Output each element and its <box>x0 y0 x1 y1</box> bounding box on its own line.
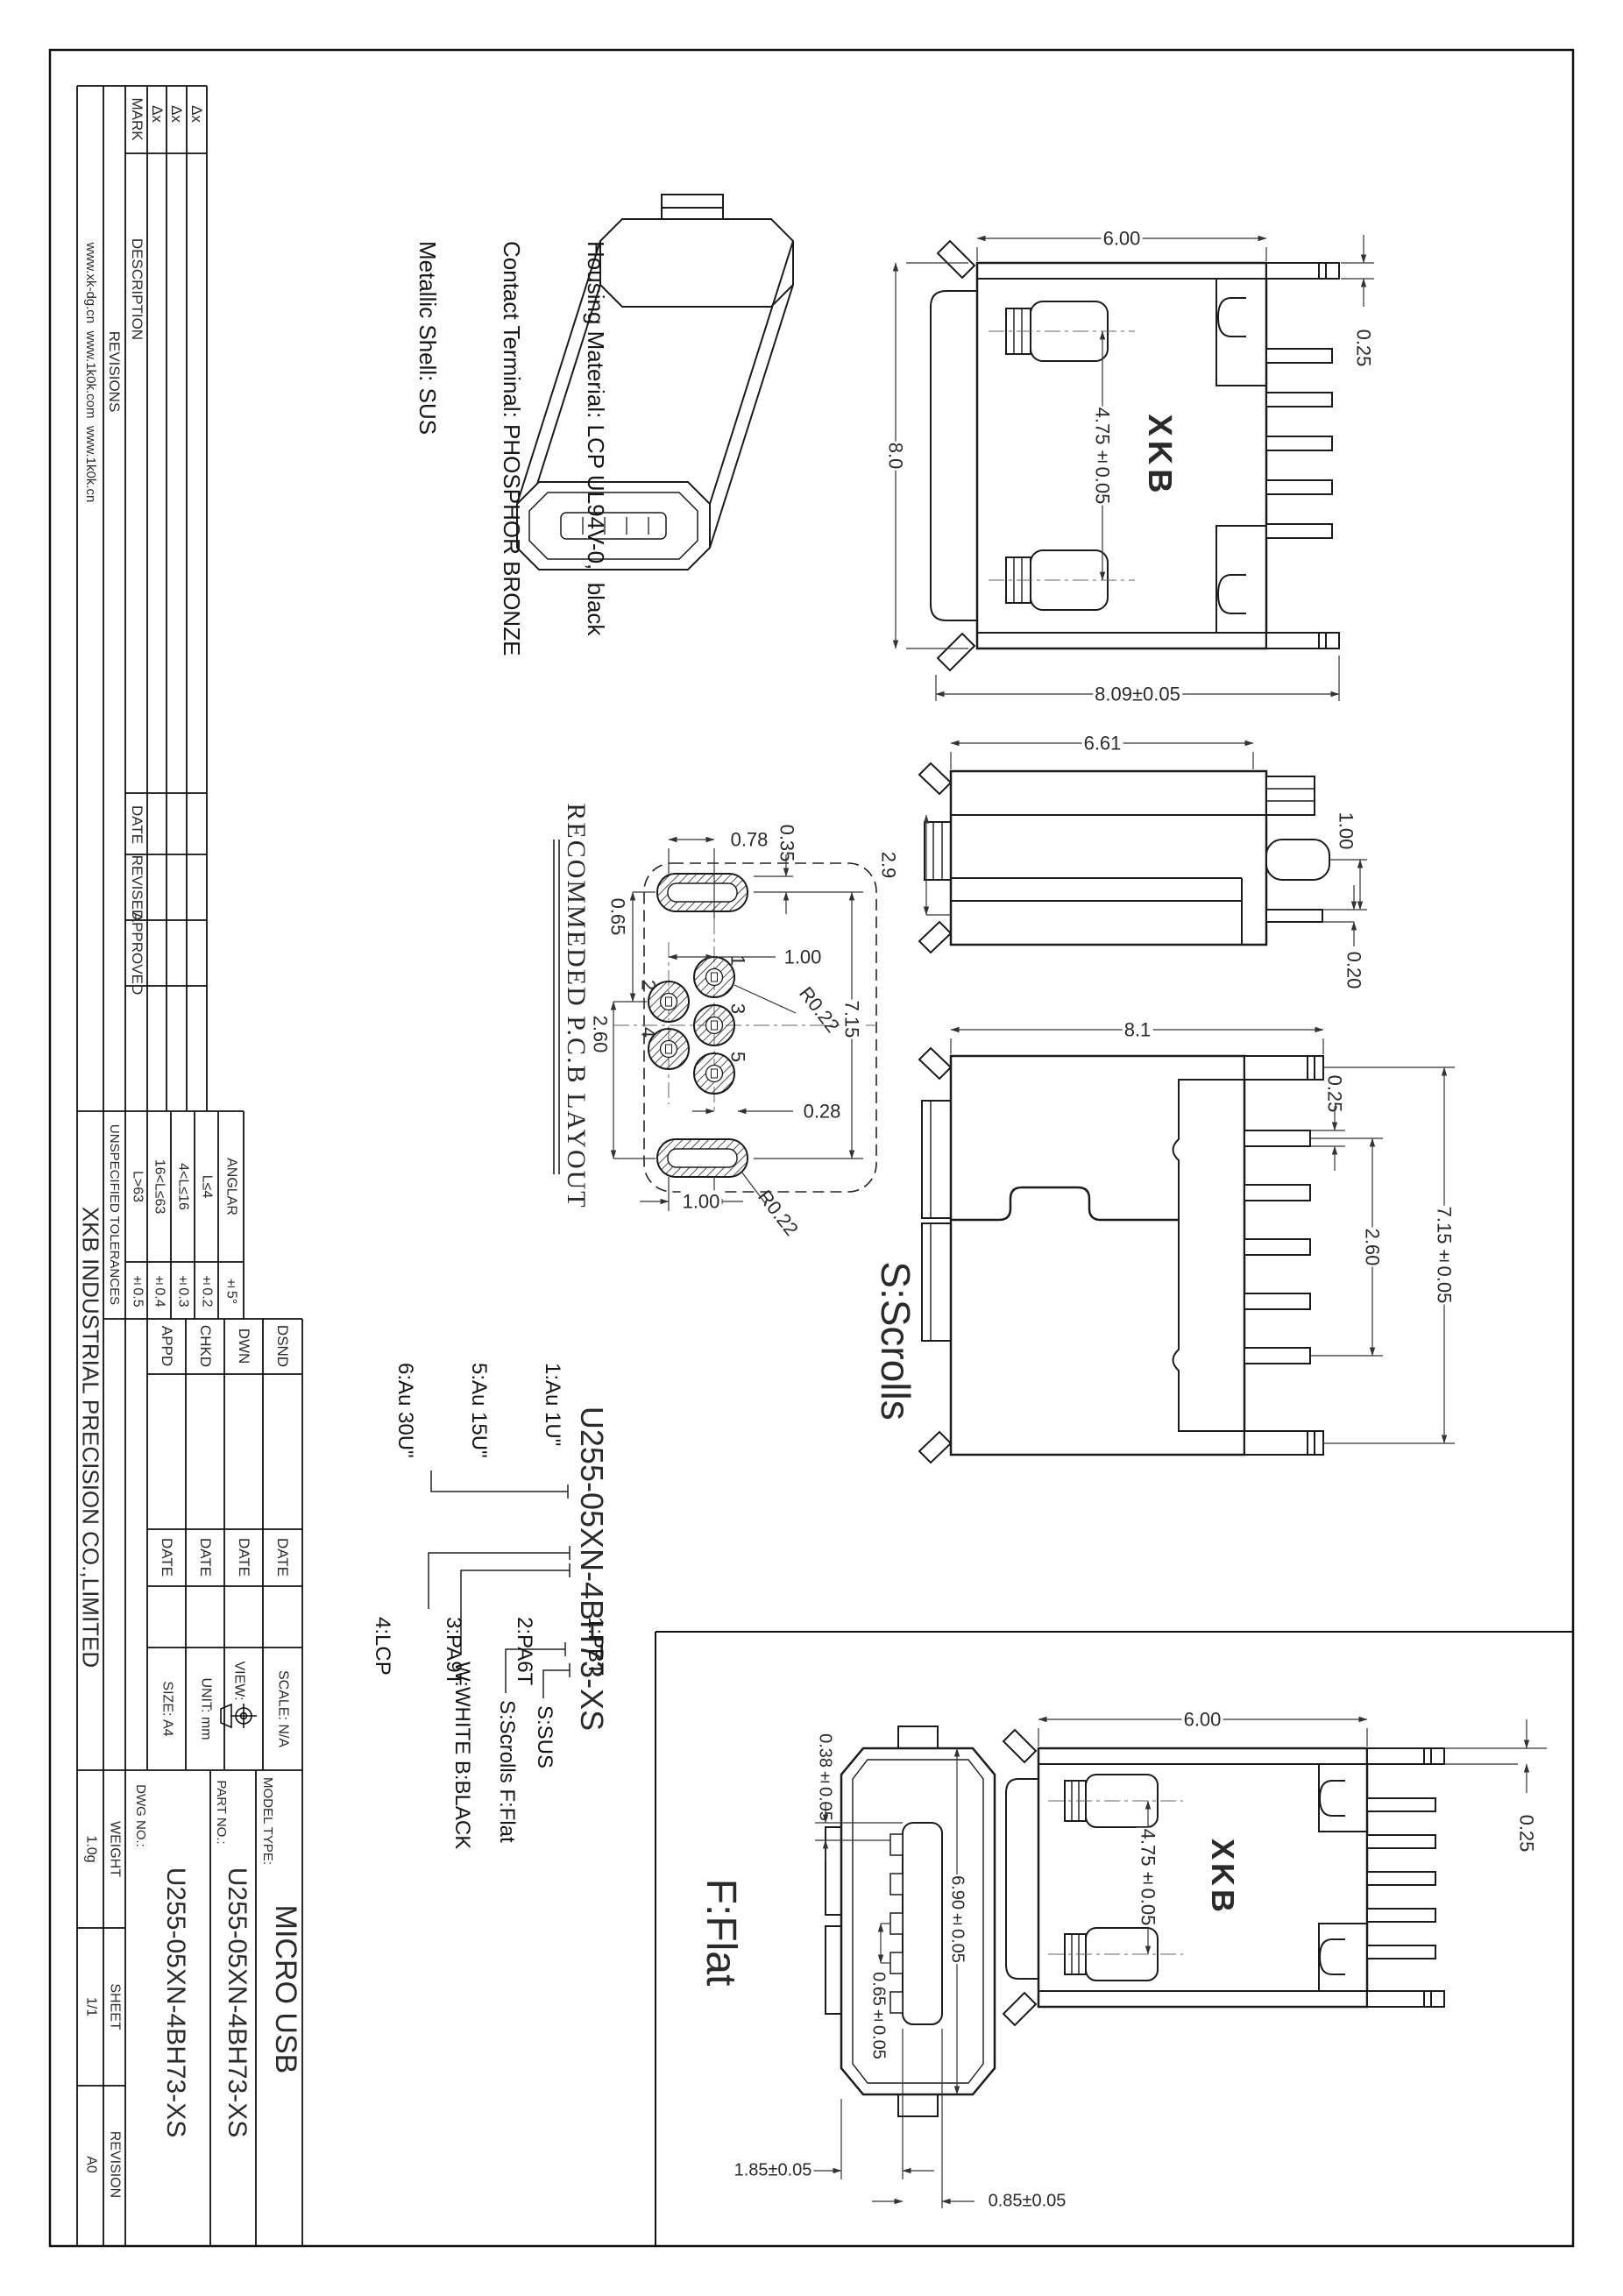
weight-value: 1.0g <box>83 1835 98 1862</box>
dim-pcb-078: 0.78 <box>731 829 769 849</box>
sig-date-3: DATE <box>236 1538 252 1577</box>
revision-value: A0 <box>83 2156 98 2173</box>
sig-chkd: CHKD <box>197 1325 213 1367</box>
dim-flatface-690: 6.90±0.05 <box>946 1874 968 1964</box>
xkb-logo-flat: XKB <box>1206 1839 1239 1916</box>
tolerance-l1663: 16<L≤63 <box>152 1159 167 1215</box>
flat-face-view <box>811 1726 995 2208</box>
dim-pcb-100-bottom: 1.00 <box>681 1190 722 1212</box>
dim-side-height: 2.9 <box>878 852 898 879</box>
tolerance-l416: 4<L≤16 <box>175 1163 190 1210</box>
dim-flatface-065: 0.65±0.05 <box>869 1972 888 2059</box>
projection-symbol-icon <box>221 1704 257 1728</box>
tolerance-l63: L>63 <box>130 1171 145 1202</box>
front-view-scrolls <box>896 235 1374 701</box>
weight-label: WEIGHT <box>107 1821 122 1877</box>
dim-top-width: 8.1 <box>1123 1018 1153 1040</box>
rev-mark-1: Δx <box>149 105 165 123</box>
dim-front-flange: 0.25 <box>1353 330 1373 367</box>
dim-pcb-100: 1.00 <box>784 946 822 967</box>
dim-top-pitch: 2.60 <box>1360 1228 1384 1267</box>
sig-date-1: DATE <box>159 1538 174 1577</box>
sheet-label: SHEET <box>107 1983 122 2030</box>
dim-flatfront-width: 6.00 <box>1182 1708 1223 1730</box>
dim-pcb-028: 0.28 <box>804 1101 841 1121</box>
xkb-logo-front: XKB <box>1141 414 1176 497</box>
sig-appd: APPD <box>159 1326 174 1366</box>
material-notes: Housing Material: LCP UL94V-0, black Con… <box>386 241 666 655</box>
dim-pcb-065: 0.65 <box>607 898 627 936</box>
websites-text: www.xk-dg.cn www.1k0k.com www.1k0k.cn <box>83 243 97 503</box>
part-no-value: U255-05XN-4BH73-XS <box>223 1867 251 2137</box>
material-pa6t: 2:PA6T <box>513 1617 536 1685</box>
dim-front-height: 8.0 <box>883 442 907 471</box>
pcb-pin-4: 4 <box>638 1027 658 1038</box>
revision-label: REVISION <box>107 2131 122 2198</box>
dim-pcb-260: 2.60 <box>590 1016 610 1053</box>
dim-front-pitch: 4.75±0.05 <box>1090 407 1114 506</box>
dim-flatface-085: 0.85±0.05 <box>989 2193 1067 2211</box>
dwg-no-label: DWG NO.: <box>133 1784 147 1847</box>
model-type-label: MODEL TYPE: <box>260 1777 274 1865</box>
pcb-pin-2: 2 <box>638 980 658 990</box>
sig-date-4: DATE <box>274 1538 290 1577</box>
dim-front-overall: 8.09±0.05 <box>1093 683 1182 705</box>
note-contact: Contact Terminal: PHOSPHOR BRONZE <box>498 241 526 655</box>
info-unit: UNIT: mm <box>198 1677 213 1740</box>
dim-flatface-038: 0.38±0.05 <box>816 1733 834 1821</box>
dim-top-span: 7.15±0.05 <box>1432 1206 1456 1305</box>
dim-side-020: 0.20 <box>1343 952 1364 989</box>
plating-au6: 6:Au 30U" <box>393 1363 417 1458</box>
sig-dsnd: DSND <box>274 1325 290 1367</box>
material-lcp: 4:LCP <box>371 1617 394 1685</box>
tolerance-v1663: ±0.4 <box>152 1272 167 1307</box>
tolerance-v63: ±0.5 <box>130 1272 145 1307</box>
pcb-layout-title: RECOMMEDED P.C.B LAYOUT <box>562 803 590 1208</box>
dim-flatface-185: 1.85±0.05 <box>733 2161 814 2181</box>
tolerance-title: UNSPECIFIED TOLERANCES <box>107 1124 121 1305</box>
flat-front-view <box>1003 1719 1547 2025</box>
rev-header-description: DESCRIPTION <box>129 238 145 340</box>
dwg-no-value: U255-05XN-4BH73-XS <box>161 1867 189 2137</box>
model-type-value: MICRO USB <box>269 1905 301 2074</box>
sheet-value: 1/1 <box>83 1997 98 2016</box>
breakdown-color: W:WHITE B:BLACK <box>450 1662 474 1849</box>
dim-side-100: 1.00 <box>1336 812 1356 850</box>
tolerance-vang: ±5° <box>223 1276 238 1304</box>
pcb-pin-3: 3 <box>727 1003 748 1014</box>
rev-header-approved: APPROVED <box>129 912 145 995</box>
side-view-scrolls <box>919 743 1367 953</box>
drawing-sheet: www.xk-dg.cn www.1k0k.com www.1k0k.cn RE… <box>0 0 1623 2296</box>
sig-dwn: DWN <box>236 1329 252 1364</box>
breakdown-plating: 1:Au 1U" 5:Au 15U" 6:Au 30U" <box>368 1363 613 1458</box>
part-no-label: PART NO.: <box>214 1780 228 1844</box>
dim-front-width: 6.00 <box>1102 227 1143 249</box>
rev-mark-3: Δx <box>188 105 204 123</box>
breakdown-shell: S:SUS <box>532 1705 556 1768</box>
breakdown-style: S:Scrolls F:Flat <box>494 1700 519 1843</box>
rev-mark-2: Δx <box>168 105 184 123</box>
tolerance-l4: L≤4 <box>199 1175 214 1199</box>
tolerance-v416: ±0.3 <box>175 1272 190 1307</box>
flat-label: F:Flat <box>698 1879 742 1987</box>
info-scale: SCALE: N/A <box>275 1670 290 1747</box>
breakdown-materials: 1:PBT 2:PA6T 3:PA9T 4:LCP <box>347 1617 655 1685</box>
revisions-title: REVISIONS <box>106 331 122 413</box>
rev-header-mark: MARK <box>129 97 145 140</box>
scrolls-label: S:Scrolls <box>875 1261 917 1420</box>
pcb-pin-5: 5 <box>727 1052 748 1062</box>
note-housing: Housing Material: LCP UL94V-0, black <box>582 241 610 655</box>
rev-header-revised: REVISED <box>129 855 145 921</box>
tolerance-angular: ANGLAR <box>223 1158 238 1215</box>
info-view: VIEW: <box>231 1661 246 1700</box>
tolerance-v4: ±0.2 <box>199 1272 214 1307</box>
dim-flatfront-025: 0.25 <box>1516 1815 1536 1853</box>
dim-pcb-035: 0.35 <box>776 825 797 862</box>
dim-top-pin: 0.25 <box>1324 1075 1344 1113</box>
company-name: XKB INDUSTRIAL PRECISION CO.,LIMITED <box>78 1207 102 1668</box>
rev-header-date: DATE <box>129 805 145 844</box>
plating-au5: 5:Au 15U" <box>466 1363 491 1458</box>
dim-flatfront-pitch: 4.75±0.05 <box>1136 1828 1159 1927</box>
note-shell: Metallic Shell: SUS <box>414 241 442 655</box>
info-size: SIZE: A4 <box>159 1681 174 1736</box>
material-pbt: 1:PBT <box>584 1617 607 1685</box>
dim-side-length: 6.61 <box>1082 732 1123 754</box>
pcb-pin-1: 1 <box>727 955 748 966</box>
sig-date-2: DATE <box>197 1538 213 1577</box>
dim-pcb-715: 7.15 <box>840 1000 863 1039</box>
plating-au1: 1:Au 1U" <box>540 1363 564 1458</box>
